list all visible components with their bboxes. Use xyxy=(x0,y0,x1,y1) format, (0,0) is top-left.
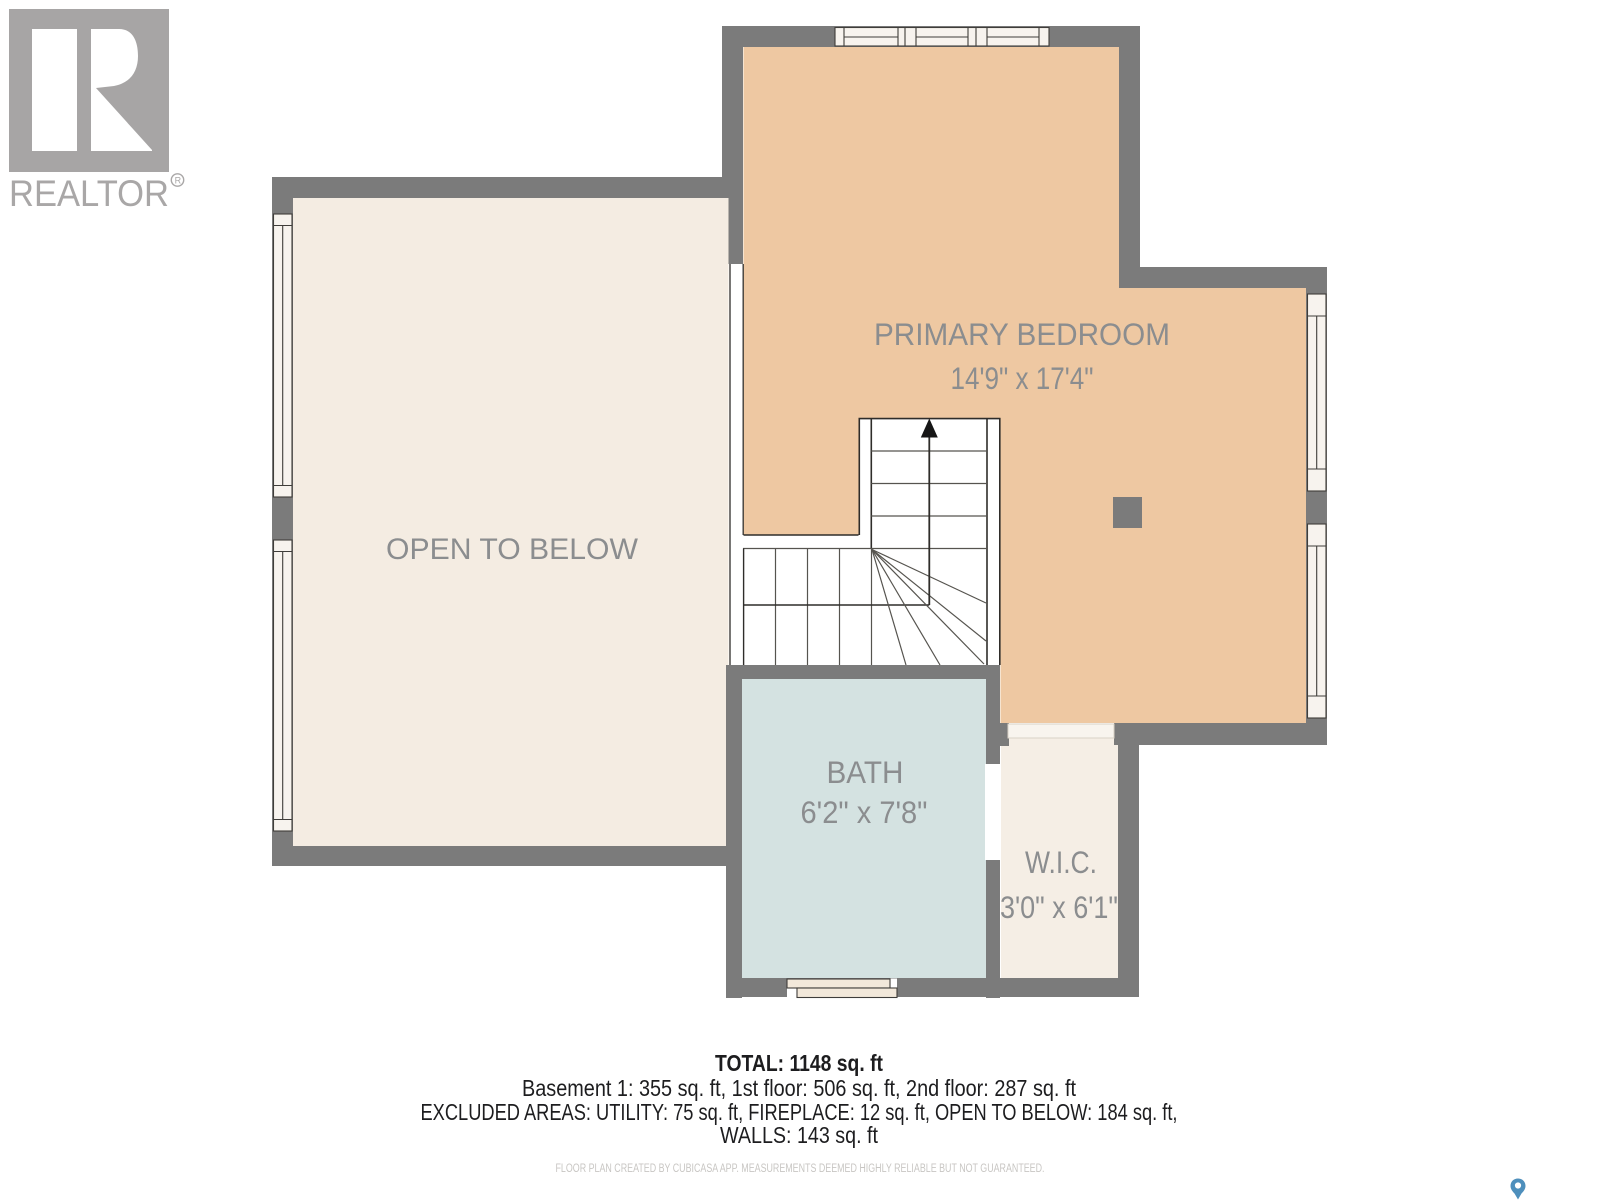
svg-text:3'0" x 6'1": 3'0" x 6'1" xyxy=(1000,889,1118,925)
svg-text:TOTAL: 1148 sq. ft: TOTAL: 1148 sq. ft xyxy=(715,1050,883,1076)
svg-text:OPEN TO BELOW: OPEN TO BELOW xyxy=(386,533,638,566)
svg-text:BATH: BATH xyxy=(827,754,904,790)
svg-text:14'9" x 17'4": 14'9" x 17'4" xyxy=(951,360,1094,396)
svg-text:R: R xyxy=(175,175,182,185)
svg-text:WALLS: 143 sq. ft: WALLS: 143 sq. ft xyxy=(720,1122,879,1148)
svg-text:PRIMARY BEDROOM: PRIMARY BEDROOM xyxy=(874,316,1170,352)
svg-text:6'2" x 7'8": 6'2" x 7'8" xyxy=(801,794,928,830)
svg-text:W.I.C.: W.I.C. xyxy=(1025,844,1097,880)
svg-text:FLOOR PLAN CREATED BY CUBICASA: FLOOR PLAN CREATED BY CUBICASA APP. MEAS… xyxy=(556,1163,1045,1175)
svg-text:Basement 1: 355 sq. ft, 1st fl: Basement 1: 355 sq. ft, 1st floor: 506 s… xyxy=(522,1075,1077,1101)
svg-text:REALTOR: REALTOR xyxy=(9,173,169,214)
